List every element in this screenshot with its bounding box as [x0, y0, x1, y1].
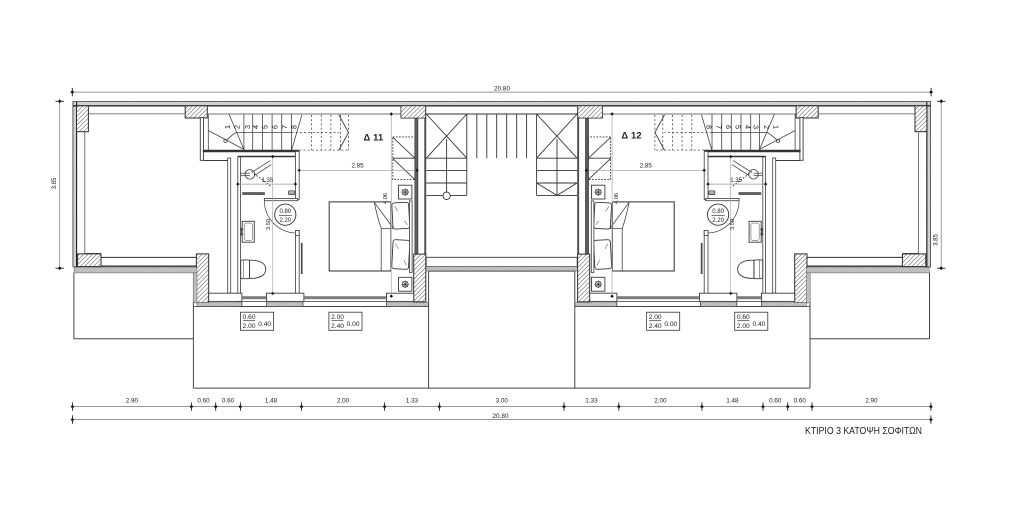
- svg-text:Δ 12: Δ 12: [621, 131, 641, 141]
- svg-text:7: 7: [714, 125, 723, 129]
- svg-text:20.80: 20.80: [494, 86, 510, 93]
- svg-text:1: 1: [223, 125, 232, 129]
- svg-text:20.80: 20.80: [493, 413, 509, 420]
- svg-text:0.40: 0.40: [752, 321, 765, 328]
- svg-text:5: 5: [734, 125, 743, 129]
- svg-text:1.35: 1.35: [730, 178, 742, 184]
- svg-text:2: 2: [233, 125, 242, 129]
- svg-text:7: 7: [280, 125, 289, 129]
- svg-text:3.85: 3.85: [934, 234, 940, 246]
- svg-text:2.00: 2.00: [649, 314, 662, 321]
- svg-text:0.80: 0.80: [279, 209, 291, 215]
- svg-text:0.60: 0.60: [197, 398, 210, 405]
- svg-text:0.00: 0.00: [347, 321, 360, 328]
- svg-text:8: 8: [705, 125, 714, 129]
- svg-text:4.06: 4.06: [614, 193, 620, 204]
- svg-text:8: 8: [290, 125, 299, 129]
- svg-text:3.50: 3.50: [266, 219, 272, 230]
- svg-text:0.60: 0.60: [222, 398, 235, 405]
- svg-text:1.33: 1.33: [406, 398, 419, 405]
- svg-text:Δ 11: Δ 11: [364, 132, 384, 142]
- svg-text:2.00: 2.00: [243, 323, 256, 330]
- svg-text:3.00: 3.00: [496, 398, 509, 405]
- svg-text:1.48: 1.48: [265, 398, 278, 405]
- svg-text:2.90: 2.90: [126, 398, 139, 405]
- svg-text:0.60: 0.60: [794, 398, 807, 405]
- svg-text:1.33: 1.33: [585, 398, 598, 405]
- svg-text:3.85: 3.85: [52, 177, 58, 189]
- svg-text:3.50: 3.50: [730, 219, 736, 230]
- svg-text:4: 4: [251, 125, 260, 129]
- svg-text:2.20: 2.20: [279, 218, 291, 224]
- svg-text:1: 1: [772, 125, 781, 129]
- svg-text:ΚΤΙΡΙΟ 3 ΚΑΤΟΨΗ ΣΟΦΙΤΩΝ: ΚΤΙΡΙΟ 3 ΚΑΤΟΨΗ ΣΟΦΙΤΩΝ: [805, 426, 922, 437]
- svg-text:2.85: 2.85: [640, 163, 653, 170]
- svg-text:2.00: 2.00: [737, 323, 750, 330]
- svg-text:0.80: 0.80: [712, 209, 724, 215]
- svg-text:0.60: 0.60: [243, 314, 256, 321]
- svg-text:2.00: 2.00: [331, 314, 344, 321]
- svg-text:0.00: 0.00: [664, 321, 677, 328]
- svg-text:2.40: 2.40: [331, 323, 344, 330]
- svg-text:2.00: 2.00: [337, 398, 350, 405]
- svg-text:4: 4: [743, 125, 752, 129]
- svg-text:2.85: 2.85: [351, 163, 364, 170]
- svg-text:0.60: 0.60: [737, 314, 750, 321]
- svg-text:2: 2: [762, 125, 771, 129]
- svg-text:6: 6: [270, 125, 279, 129]
- svg-text:4.06: 4.06: [383, 193, 389, 204]
- svg-text:2.90: 2.90: [865, 398, 878, 405]
- svg-text:2.20: 2.20: [712, 218, 724, 224]
- svg-text:5: 5: [261, 125, 270, 129]
- svg-text:0.60: 0.60: [769, 398, 782, 405]
- svg-text:2.40: 2.40: [649, 323, 662, 330]
- svg-text:2.00: 2.00: [654, 398, 667, 405]
- svg-text:1.48: 1.48: [726, 398, 739, 405]
- svg-text:1.35: 1.35: [262, 178, 274, 184]
- svg-text:0.40: 0.40: [258, 321, 271, 328]
- svg-text:6: 6: [724, 125, 733, 129]
